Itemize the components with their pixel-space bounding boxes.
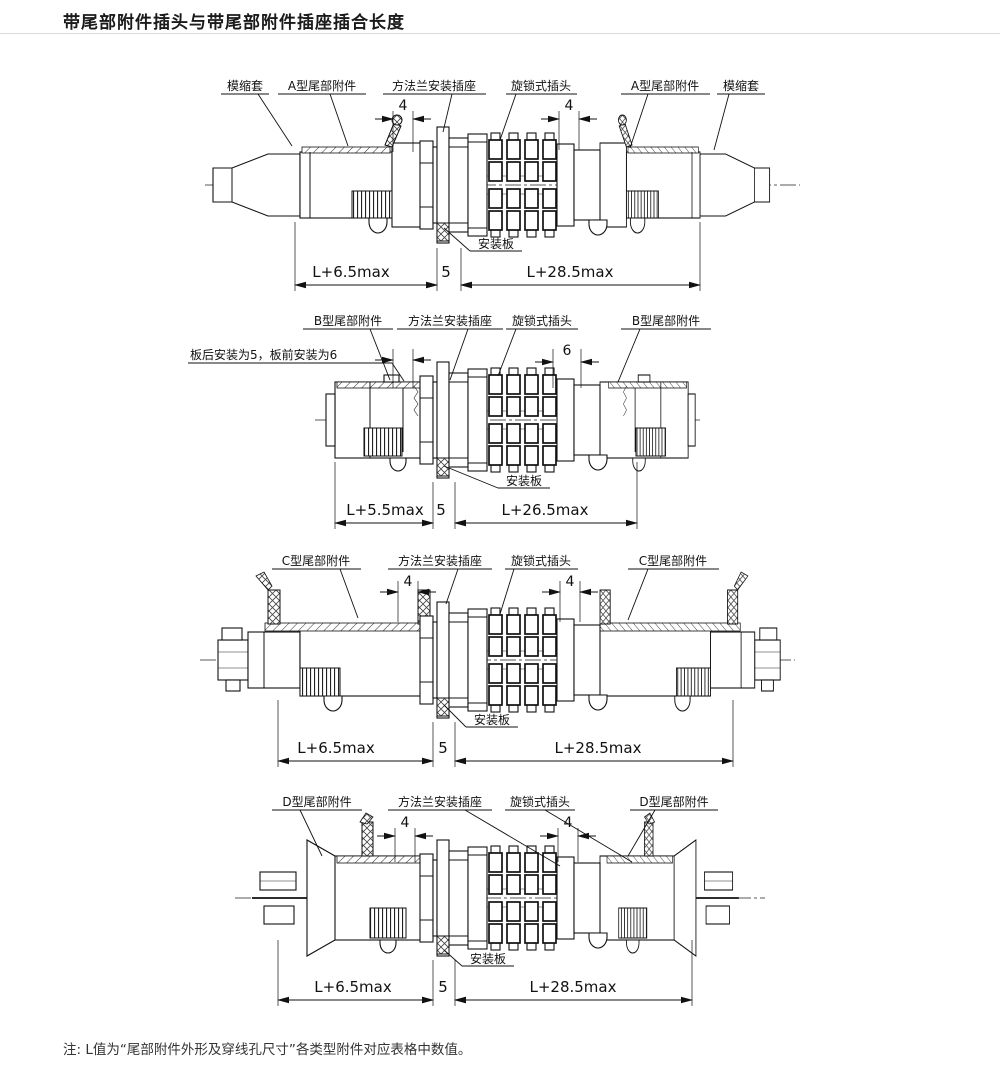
label-right-tail: A型尾部附件 bbox=[621, 78, 710, 148]
label-left-tail: C型尾部附件 bbox=[272, 553, 361, 618]
label-right-tail: C型尾部附件 bbox=[628, 553, 719, 620]
svg-text:L+28.5max: L+28.5max bbox=[529, 978, 616, 996]
svg-text:6: 6 bbox=[563, 343, 572, 359]
svg-text:板后安装为5，板前安装为6: 板后安装为5，板前安装为6 bbox=[190, 347, 337, 362]
svg-text:4: 4 bbox=[404, 574, 413, 590]
svg-text:B型尾部附件: B型尾部附件 bbox=[632, 313, 700, 328]
svg-text:D型尾部附件: D型尾部附件 bbox=[639, 794, 708, 809]
svg-text:5: 5 bbox=[436, 501, 446, 519]
svg-text:方法兰安装插座: 方法兰安装插座 bbox=[408, 313, 492, 328]
diagram-type-d: D型尾部附件 方法兰安装插座 旋锁式插头 D型尾部附件 安装板 bbox=[235, 794, 765, 1006]
svg-text:B型尾部附件: B型尾部附件 bbox=[314, 313, 382, 328]
svg-text:D型尾部附件: D型尾部附件 bbox=[282, 794, 351, 809]
label-left-sleeve: 模缩套 bbox=[221, 78, 292, 146]
svg-text:旋锁式插头: 旋锁式插头 bbox=[510, 794, 570, 809]
dim-row: L+6.5max 5 L+28.5max bbox=[278, 700, 733, 767]
svg-text:模缩套: 模缩套 bbox=[227, 78, 263, 93]
svg-text:4: 4 bbox=[566, 574, 575, 590]
svg-text:C型尾部附件: C型尾部附件 bbox=[639, 553, 707, 568]
label-right-tail: B型尾部附件 bbox=[618, 313, 711, 382]
label-right-tail: D型尾部附件 bbox=[628, 794, 718, 856]
footnote: 注: L值为“尾部附件外形及穿线孔尺寸”各类型附件对应表格中数值。 bbox=[63, 1038, 471, 1058]
svg-text:A型尾部附件: A型尾部附件 bbox=[631, 78, 699, 93]
svg-text:安装板: 安装板 bbox=[474, 712, 510, 727]
label-install-note: 板后安装为5，板前安装为6 bbox=[188, 347, 404, 381]
svg-text:旋锁式插头: 旋锁式插头 bbox=[511, 553, 571, 568]
svg-text:C型尾部附件: C型尾部附件 bbox=[282, 553, 350, 568]
page: 带尾部附件插头与带尾部附件插座插合长度 bbox=[0, 0, 1000, 1073]
diagram-type-c: C型尾部附件 方法兰安装插座 旋锁式插头 C型尾部附件 安装板 bbox=[200, 553, 795, 767]
svg-text:4: 4 bbox=[565, 98, 574, 114]
svg-text:4: 4 bbox=[401, 815, 410, 831]
svg-text:4: 4 bbox=[564, 815, 573, 831]
label-left-tail: A型尾部附件 bbox=[278, 78, 366, 146]
svg-text:方法兰安装插座: 方法兰安装插座 bbox=[398, 794, 482, 809]
svg-text:安装板: 安装板 bbox=[470, 951, 506, 966]
svg-text:4: 4 bbox=[399, 98, 408, 114]
diagram-type-a: 模缩套 A型尾部附件 方法兰安装插座 旋锁式插头 A型尾部附件 模缩套 bbox=[205, 78, 800, 291]
svg-text:5: 5 bbox=[438, 978, 448, 996]
svg-text:5: 5 bbox=[438, 739, 448, 757]
svg-text:L+26.5max: L+26.5max bbox=[501, 501, 588, 519]
svg-text:方法兰安装插座: 方法兰安装插座 bbox=[398, 553, 482, 568]
svg-text:安装板: 安装板 bbox=[478, 236, 514, 251]
svg-text:L+6.5max: L+6.5max bbox=[297, 739, 375, 757]
svg-text:L+6.5max: L+6.5max bbox=[312, 263, 390, 281]
svg-text:L+28.5max: L+28.5max bbox=[526, 263, 613, 281]
svg-text:L+28.5max: L+28.5max bbox=[554, 739, 641, 757]
label-right-sleeve: 模缩套 bbox=[714, 78, 765, 150]
svg-text:L+6.5max: L+6.5max bbox=[314, 978, 392, 996]
drawing-canvas: 模缩套 A型尾部附件 方法兰安装插座 旋锁式插头 A型尾部附件 模缩套 bbox=[0, 0, 1000, 1073]
svg-text:旋锁式插头: 旋锁式插头 bbox=[511, 78, 571, 93]
dim-row: L+5.5max 5 L+26.5max bbox=[335, 462, 637, 529]
svg-text:5: 5 bbox=[441, 263, 451, 281]
svg-text:旋锁式插头: 旋锁式插头 bbox=[512, 313, 572, 328]
diagram-type-b: B型尾部附件 方法兰安装插座 旋锁式插头 B型尾部附件 板后安装为5，板前安装为… bbox=[188, 313, 711, 529]
svg-text:A型尾部附件: A型尾部附件 bbox=[288, 78, 356, 93]
label-left-tail: B型尾部附件 bbox=[303, 313, 393, 380]
label-mounting-plate: 安装板 bbox=[444, 950, 514, 966]
svg-text:安装板: 安装板 bbox=[506, 473, 542, 488]
svg-text:方法兰安装插座: 方法兰安装插座 bbox=[392, 78, 476, 93]
svg-text:L+5.5max: L+5.5max bbox=[346, 501, 424, 519]
svg-text:模缩套: 模缩套 bbox=[723, 78, 759, 93]
